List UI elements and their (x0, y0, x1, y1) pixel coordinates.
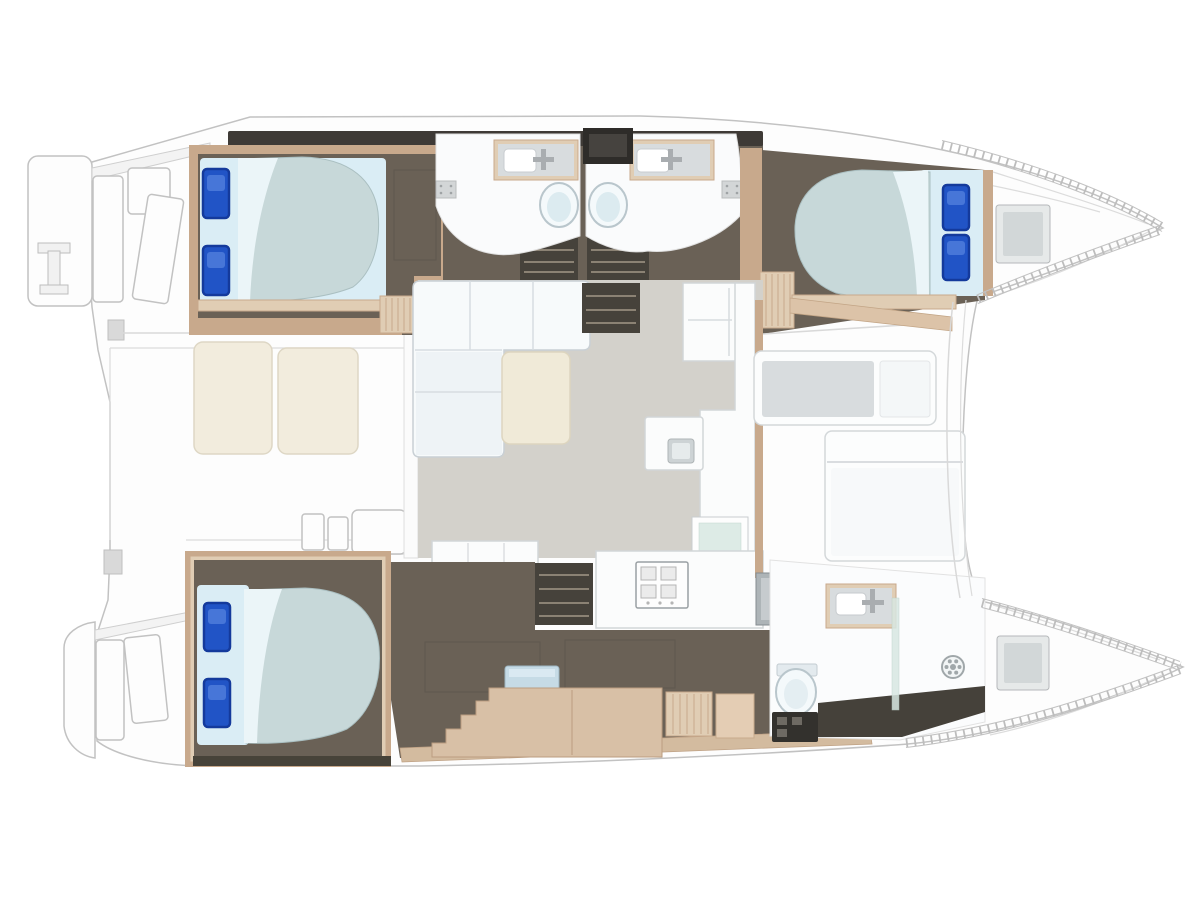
upper-aft-cabin (189, 145, 450, 335)
companionway-steps (535, 563, 593, 625)
cockpit-cushion (278, 348, 358, 454)
shower-glass (892, 598, 899, 710)
burner (661, 585, 676, 598)
chart-cabinet (432, 541, 538, 564)
saloon-table (502, 352, 570, 444)
locker-hatch (716, 694, 754, 738)
vanity-sink (494, 140, 578, 180)
forward-bench (754, 351, 936, 425)
burner (641, 585, 656, 598)
cockpit-cushion (194, 342, 272, 454)
shower-drain (436, 181, 456, 198)
bow-hatch (997, 636, 1049, 690)
toilet (589, 183, 627, 227)
cleat-icon (104, 550, 122, 574)
companionway-steps (582, 283, 640, 333)
shower-drain (722, 181, 742, 198)
burner (661, 567, 676, 580)
shower-drain-rosette (942, 656, 964, 678)
lower-aft-cabin (185, 551, 391, 767)
galley-island (645, 417, 703, 470)
bow-hatch (996, 205, 1050, 263)
center-cabinet (583, 128, 633, 164)
lower-bathroom (770, 560, 985, 742)
louvered-locker (666, 692, 712, 736)
transom-locker (96, 640, 124, 740)
forward-table-seat (825, 431, 965, 561)
pillow (203, 169, 229, 218)
pillow (943, 185, 969, 230)
cockpit-step (328, 517, 348, 550)
stove (636, 562, 688, 608)
pillow (943, 235, 969, 280)
toilet (540, 183, 578, 227)
pillow (204, 603, 230, 651)
floor-plan-svg (0, 0, 1200, 900)
louvered-locker (760, 272, 794, 328)
fridge-cabinet (683, 283, 737, 361)
bow-bulkhead (983, 170, 993, 296)
lower-stern-platform (64, 622, 95, 758)
bathroom-left (436, 134, 580, 255)
transom-locker (93, 176, 123, 302)
toilet (776, 664, 817, 715)
hull-window-band (193, 756, 391, 766)
berth-base-trim (198, 300, 386, 311)
burner (641, 567, 656, 580)
pillow (203, 246, 229, 295)
vanity-sink (630, 140, 714, 180)
cockpit-seat (352, 510, 406, 554)
pillow (204, 679, 230, 727)
forward-wall-trim (755, 300, 763, 578)
vanity-sink (826, 584, 896, 628)
cockpit-step (302, 514, 324, 550)
cleat-icon (108, 320, 124, 340)
control-panel (772, 712, 818, 742)
catamaran-floor-plan (0, 0, 1200, 900)
louvered-locker (380, 296, 414, 333)
